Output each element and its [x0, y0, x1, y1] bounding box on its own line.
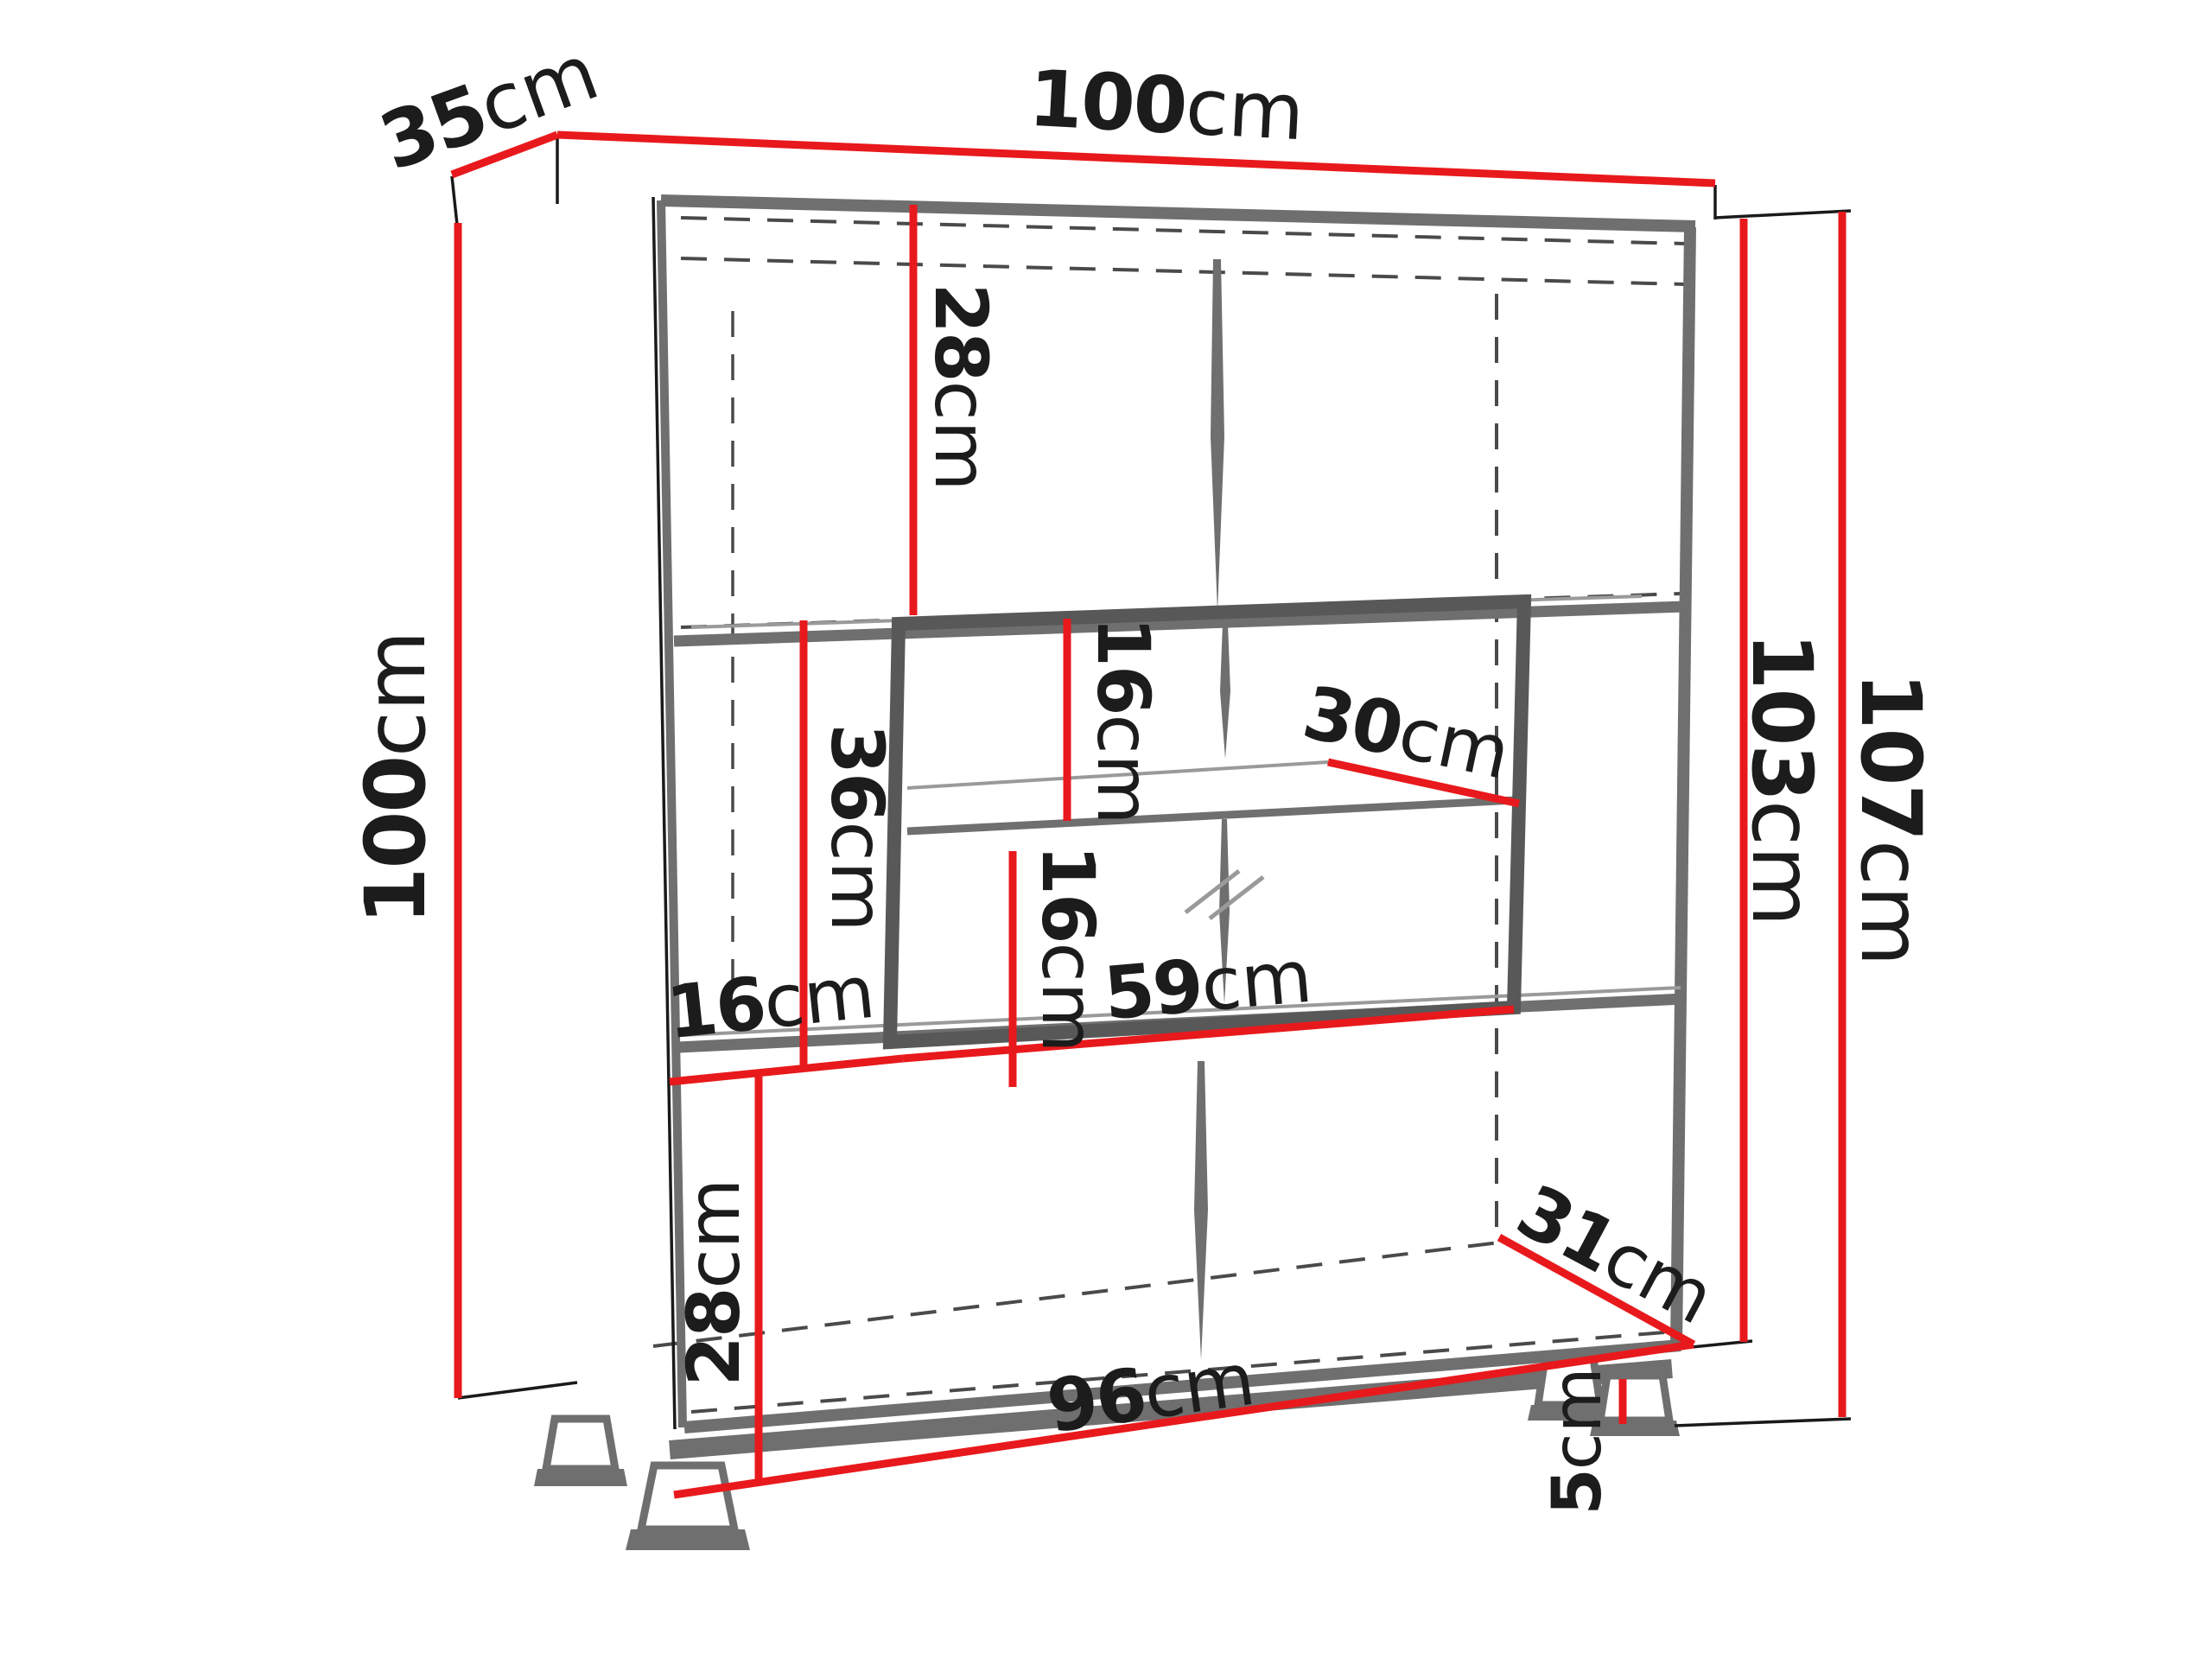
dim-label-bottom-depth: 31cm — [1504, 1168, 1728, 1341]
glass-hatch-icon — [1210, 877, 1263, 918]
front-left-foot-base — [626, 1529, 750, 1550]
hidden-top-panel-edge — [681, 258, 1685, 284]
dimension-labels: 35cm 100cm 100cm 103cm 107cm 28cm 16cm 3… — [347, 26, 1939, 1515]
glass-hatch-icon — [1185, 871, 1239, 912]
tick-top-right-across — [1715, 211, 1851, 218]
bottom-section-divider — [1194, 1061, 1208, 1360]
dim-label-left-height: 100cm — [347, 631, 444, 925]
tick-bottom-right-outer — [1675, 1419, 1851, 1426]
dim-label-bottom-width: 96cm — [1042, 1337, 1260, 1450]
glass-shelf-front-edge — [907, 800, 1516, 831]
dim-label-top-section-height: 28cm — [918, 283, 1003, 492]
dim-label-foot-height: 5cm — [1539, 1367, 1617, 1515]
dim-label-right-total-height: 107cm — [1842, 672, 1939, 967]
dim-label-top-width: 100cm — [1027, 53, 1306, 158]
front-left-foot — [641, 1465, 734, 1529]
dim-label-glass-top-gap: 16cm — [1081, 617, 1166, 825]
right-edge — [1676, 227, 1690, 1346]
back-left-foot-base — [534, 1469, 627, 1486]
diagram-canvas: 35cm 100cm 100cm 103cm 107cm 28cm 16cm 3… — [0, 0, 2212, 1659]
dim-label-middle-section-height: 36cm — [815, 724, 899, 932]
dim-label-right-inner-height: 103cm — [1733, 632, 1830, 927]
top-section-divider — [1211, 259, 1224, 612]
glass-back-divider-upper — [1220, 624, 1230, 759]
dim-label-glass-bottom-gap: 16cm — [1026, 845, 1110, 1053]
dim-label-glass-width: 59cm — [1101, 934, 1316, 1037]
hidden-bottom-back-edge — [653, 1243, 1499, 1346]
tick-bottom-left — [458, 1382, 577, 1398]
back-left-foot — [546, 1419, 615, 1469]
cabinet-dimension-diagram: 35cm 100cm 100cm 103cm 107cm 28cm 16cm 3… — [0, 0, 2212, 1659]
dim-line-left-gap — [670, 1058, 903, 1082]
tick-top-depth-left — [452, 176, 457, 225]
dim-label-bottom-section-height: 28cm — [671, 1179, 756, 1387]
